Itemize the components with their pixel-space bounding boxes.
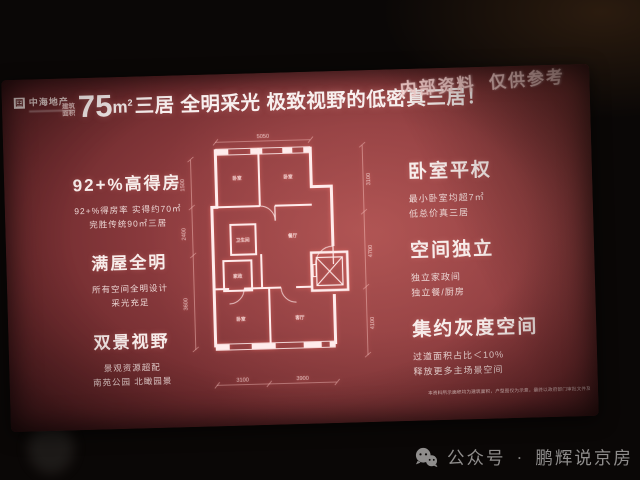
floorplan-diagram: 5050 3100 4700 4100 3100 3900 1500 2400 … [170,125,390,406]
svg-text:餐厅: 餐厅 [287,232,298,239]
headline-area-label: 建筑 面积 [62,103,75,117]
room-labels: 卧室 卧室 卫生间 家政 餐厅 客厅 卧室 [230,173,305,323]
svg-text:卧室: 卧室 [232,175,242,182]
svg-text:3600: 3600 [183,298,189,311]
svg-text:4700: 4700 [368,245,374,258]
floorplan-walls [210,146,336,350]
right-feature-column: 卧室平权 最小卧室均超7㎡ 低总价真三居 空间独立 独立家政间 独立餐/厨房 集… [408,152,590,394]
feature-block: 空间独立 独立家政间 独立餐/厨房 [410,231,587,301]
svg-text:1500: 1500 [180,179,186,192]
feature-block: 卧室平权 最小卧室均超7㎡ 低总价真三居 [408,152,585,222]
feature-heading: 空间独立 [410,231,586,263]
wechat-account-name: 鹏辉说京房 [535,445,633,470]
svg-text:卫生间: 卫生间 [236,236,250,243]
svg-text:3100: 3100 [366,173,372,186]
svg-text:卧室: 卧室 [236,316,246,323]
svg-text:5050: 5050 [257,134,270,140]
developer-logo-icon: 囯 [14,98,25,109]
wechat-icon [414,447,438,469]
svg-text:3900: 3900 [296,376,309,382]
wechat-separator: · [517,447,525,468]
wechat-account-label: 公众号 [447,445,506,470]
marketing-board: 囯 中海地产 建筑 面积 75 m2 三居 全明采光 极致视野的低密真三居！ 内… [1,64,599,432]
svg-text:4100: 4100 [370,317,376,330]
svg-text:家政: 家政 [233,273,243,280]
elevator-shaft [311,252,348,291]
svg-text:客厅: 客厅 [294,314,305,321]
svg-text:3100: 3100 [236,377,249,383]
feature-block: 集约灰度空间 过道面积占比＜10% 释放更多主场景空间 [412,310,589,380]
svg-text:2400: 2400 [181,228,187,241]
headline-area-value: 75 [78,92,113,121]
feature-heading: 集约灰度空间 [412,310,588,342]
headline-area-unit: m2 [112,91,133,120]
svg-text:卧室: 卧室 [283,173,293,180]
wechat-watermark: 公众号 · 鹏辉说京房 [414,445,633,470]
feature-heading: 卧室平权 [408,152,584,184]
